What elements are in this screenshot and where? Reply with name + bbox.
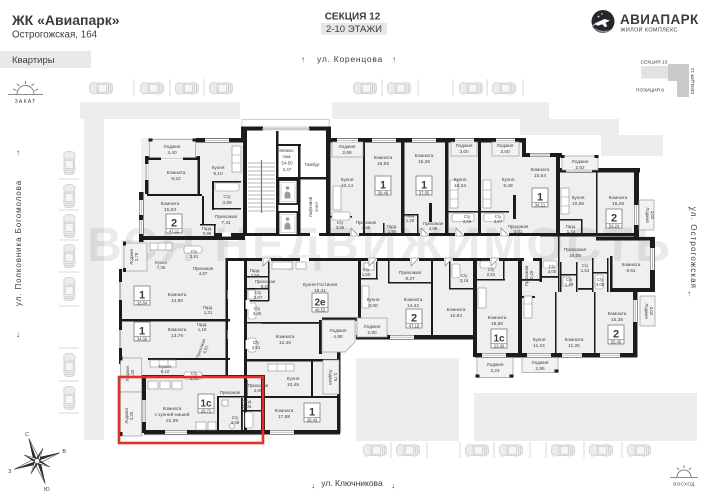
svg-text:Комната: Комната bbox=[415, 153, 434, 159]
svg-text:47,19: 47,19 bbox=[409, 324, 420, 329]
svg-text:ЗАКАТ: ЗАКАТ bbox=[15, 99, 37, 105]
svg-text:ул. Коренцова: ул. Коренцова bbox=[317, 54, 383, 64]
svg-text:ул. Острогожская: ул. Острогожская bbox=[689, 207, 698, 289]
svg-text:9,10: 9,10 bbox=[161, 369, 170, 374]
svg-text:14,90: 14,90 bbox=[171, 298, 183, 304]
svg-text:54,24: 54,24 bbox=[609, 224, 620, 229]
svg-text:55,45: 55,45 bbox=[611, 340, 622, 345]
svg-text:2,07: 2,07 bbox=[254, 295, 263, 300]
svg-text:1,19: 1,19 bbox=[198, 327, 207, 332]
svg-text:3,00: 3,00 bbox=[596, 282, 605, 287]
svg-text:11,24: 11,24 bbox=[533, 343, 545, 349]
svg-text:38,48: 38,48 bbox=[378, 191, 389, 196]
svg-text:Комната: Комната bbox=[163, 406, 182, 412]
svg-text:Комната: Комната bbox=[168, 327, 187, 333]
svg-text:2,68: 2,68 bbox=[342, 150, 352, 156]
svg-text:3,85: 3,85 bbox=[336, 225, 345, 230]
svg-text:1,31: 1,31 bbox=[204, 310, 213, 315]
svg-text:Квартиры: Квартиры bbox=[12, 55, 55, 66]
svg-text:23,09: 23,09 bbox=[494, 344, 505, 349]
svg-text:15,03: 15,03 bbox=[164, 207, 176, 213]
svg-text:Комната: Комната bbox=[275, 408, 294, 414]
svg-text:Кухня: Кухня bbox=[502, 177, 515, 183]
svg-text:ЖК «Авиапарк»: ЖК «Авиапарк» bbox=[11, 12, 120, 28]
svg-text:10,15: 10,15 bbox=[529, 270, 534, 282]
svg-text:0,96: 0,96 bbox=[203, 231, 212, 236]
svg-text:Кухня: Кухня bbox=[341, 177, 354, 183]
svg-text:2,86: 2,86 bbox=[535, 366, 545, 372]
svg-text:2,47: 2,47 bbox=[283, 167, 292, 172]
svg-text:17,88: 17,88 bbox=[278, 414, 290, 420]
svg-text:15,36: 15,36 bbox=[418, 159, 430, 165]
svg-text:10,84: 10,84 bbox=[450, 313, 462, 319]
svg-text:7,41: 7,41 bbox=[221, 220, 231, 226]
svg-text:1,49: 1,49 bbox=[565, 282, 574, 287]
svg-text:Лоджия: Лоджия bbox=[164, 144, 181, 150]
svg-text:Комната: Комната bbox=[167, 170, 186, 176]
svg-text:3,20: 3,20 bbox=[129, 411, 134, 420]
svg-text:Тамбур: Тамбур bbox=[305, 162, 320, 167]
svg-text:ул. Ключникова: ул. Ключникова bbox=[321, 478, 383, 488]
svg-text:Комната: Комната bbox=[447, 307, 466, 313]
svg-text:47,11: 47,11 bbox=[169, 229, 180, 234]
svg-text:3,02: 3,02 bbox=[649, 307, 654, 316]
svg-text:34,09: 34,09 bbox=[137, 337, 148, 342]
svg-text:Кухня: Кухня bbox=[367, 297, 380, 303]
svg-text:3,00: 3,00 bbox=[548, 269, 557, 274]
svg-text:54-50: 54-50 bbox=[281, 161, 293, 166]
svg-text:7,36: 7,36 bbox=[157, 265, 166, 270]
svg-text:12,46: 12,46 bbox=[279, 340, 291, 346]
svg-text:3,67: 3,67 bbox=[494, 219, 503, 224]
svg-text:4,01: 4,01 bbox=[514, 229, 523, 234]
svg-text:Комната: Комната bbox=[276, 334, 295, 340]
svg-text:Лоджия: Лоджия bbox=[572, 159, 589, 165]
svg-text:8,27: 8,27 bbox=[405, 276, 415, 282]
svg-text:4,80: 4,80 bbox=[254, 388, 263, 393]
svg-text:22,39: 22,39 bbox=[166, 418, 178, 424]
svg-text:3,02: 3,02 bbox=[650, 211, 655, 220]
svg-text:Комната: Комната bbox=[622, 262, 641, 268]
svg-text:Кухня: Кухня bbox=[572, 195, 585, 201]
svg-text:10,45: 10,45 bbox=[287, 382, 299, 388]
svg-text:ЖИЛОЙ КОМПЛЕКС: ЖИЛОЙ КОМПЛЕКС bbox=[621, 26, 678, 34]
svg-text:1,54: 1,54 bbox=[581, 268, 590, 273]
svg-text:34,21: 34,21 bbox=[535, 203, 546, 208]
svg-text:Лоджия: Лоджия bbox=[645, 207, 650, 223]
svg-text:СЕКЦИЯ 13: СЕКЦИЯ 13 bbox=[641, 60, 668, 66]
svg-text:10,14: 10,14 bbox=[341, 183, 353, 189]
svg-text:8,00: 8,00 bbox=[368, 303, 378, 309]
svg-text:33,84: 33,84 bbox=[137, 301, 148, 306]
svg-text:13,78: 13,78 bbox=[171, 333, 183, 339]
svg-text:↑: ↑ bbox=[687, 289, 691, 298]
svg-text:СЕКЦИЯ 12: СЕКЦИЯ 12 bbox=[690, 67, 696, 94]
svg-text:3,91: 3,91 bbox=[190, 254, 199, 259]
svg-text:Лоджия: Лоджия bbox=[364, 324, 381, 330]
svg-text:16,59: 16,59 bbox=[377, 161, 389, 167]
svg-text:с кухней-нишей: с кухней-нишей bbox=[155, 411, 190, 418]
svg-text:3,69: 3,69 bbox=[222, 200, 232, 206]
svg-text:Лоджия: Лоджия bbox=[339, 144, 356, 150]
svg-text:Комната: Комната bbox=[531, 167, 550, 173]
svg-text:Лоджия: Лоджия bbox=[497, 143, 514, 149]
svg-text:48,53: 48,53 bbox=[315, 308, 326, 313]
svg-text:↓: ↓ bbox=[311, 481, 315, 490]
svg-text:Комната: Комната bbox=[609, 195, 628, 201]
svg-text:Межил.: Межил. bbox=[279, 148, 294, 153]
svg-text:4,97: 4,97 bbox=[199, 271, 208, 276]
svg-text:15,54: 15,54 bbox=[534, 173, 546, 179]
svg-text:9,49: 9,49 bbox=[503, 183, 513, 189]
svg-text:Лоджия: Лоджия bbox=[644, 303, 649, 319]
svg-text:4,88: 4,88 bbox=[429, 226, 438, 231]
svg-text:10,05: 10,05 bbox=[569, 253, 581, 259]
svg-text:6,29: 6,29 bbox=[261, 284, 270, 289]
svg-text:4,45: 4,45 bbox=[253, 311, 262, 316]
svg-text:холл: холл bbox=[314, 202, 319, 212]
svg-text:Лоджия: Лоджия bbox=[330, 328, 347, 334]
svg-text:28,72: 28,72 bbox=[201, 409, 212, 414]
svg-text:Лоджия: Лоджия bbox=[328, 369, 333, 385]
svg-text:Острогожская, 164: Острогожская, 164 bbox=[12, 30, 98, 41]
svg-text:Прихожая: Прихожая bbox=[215, 214, 238, 220]
svg-text:Прихожая: Прихожая bbox=[220, 390, 241, 395]
svg-text:↓: ↓ bbox=[16, 330, 20, 339]
svg-text:4,98: 4,98 bbox=[333, 334, 343, 340]
svg-text:ВОСХОД: ВОСХОД bbox=[673, 482, 695, 487]
svg-text:2,78: 2,78 bbox=[333, 373, 338, 382]
svg-text:пом.: пом. bbox=[282, 154, 291, 159]
svg-text:18,66: 18,66 bbox=[491, 321, 503, 327]
svg-text:↑: ↑ bbox=[16, 148, 20, 157]
svg-text:Прихожая: Прихожая bbox=[564, 247, 587, 253]
svg-text:2-10 ЭТАЖИ: 2-10 ЭТАЖИ bbox=[326, 24, 382, 35]
svg-text:Комната: Комната bbox=[374, 155, 393, 161]
svg-text:Комната: Комната bbox=[168, 292, 187, 298]
svg-text:Комната: Комната bbox=[608, 311, 627, 317]
svg-text:Лоджия: Лоджия bbox=[456, 143, 473, 149]
svg-text:2,56: 2,56 bbox=[251, 273, 260, 278]
svg-text:Ю: Ю bbox=[44, 487, 50, 493]
svg-text:Кухня: Кухня bbox=[212, 165, 225, 171]
svg-text:3,00: 3,00 bbox=[459, 149, 469, 155]
svg-text:Лоджия: Лоджия bbox=[487, 362, 504, 368]
svg-text:37,05: 37,05 bbox=[419, 191, 430, 196]
svg-text:↓: ↓ bbox=[391, 481, 395, 490]
svg-text:38,43: 38,43 bbox=[307, 418, 318, 423]
svg-text:2,80: 2,80 bbox=[367, 330, 377, 336]
svg-text:С/у: С/у bbox=[223, 194, 231, 200]
svg-text:4,66: 4,66 bbox=[362, 225, 371, 230]
svg-text:2,78: 2,78 bbox=[134, 252, 139, 261]
svg-text:3,69: 3,69 bbox=[463, 219, 472, 224]
svg-text:Кухня: Кухня bbox=[287, 376, 300, 382]
svg-text:Комната: Комната bbox=[404, 297, 423, 303]
svg-text:1,50: 1,50 bbox=[362, 272, 371, 277]
svg-text:11,25: 11,25 bbox=[568, 343, 580, 349]
svg-text:1,05: 1,05 bbox=[243, 404, 252, 409]
svg-text:1,90: 1,90 bbox=[388, 229, 397, 234]
svg-text:Кухня-Гостиная: Кухня-Гостиная bbox=[303, 282, 338, 288]
svg-text:Кухня: Кухня bbox=[533, 337, 546, 343]
svg-text:10,55: 10,55 bbox=[572, 201, 584, 207]
svg-text:Комната: Комната bbox=[488, 315, 507, 321]
svg-text:10,34: 10,34 bbox=[454, 183, 466, 189]
svg-text:↑: ↑ bbox=[392, 55, 396, 64]
svg-text:С: С bbox=[25, 432, 29, 438]
svg-text:2,52: 2,52 bbox=[575, 165, 585, 171]
svg-text:3,24: 3,24 bbox=[490, 368, 500, 374]
svg-text:Лифтовой: Лифтовой bbox=[308, 196, 313, 217]
svg-text:Комната: Комната bbox=[565, 337, 584, 343]
svg-text:9,22: 9,22 bbox=[171, 176, 181, 182]
svg-text:В: В bbox=[62, 449, 66, 455]
svg-text:Кухня: Кухня bbox=[454, 177, 467, 183]
svg-text:3,16: 3,16 bbox=[460, 278, 469, 283]
svg-text:3,40: 3,40 bbox=[167, 150, 177, 156]
svg-text:3,91: 3,91 bbox=[252, 345, 261, 350]
svg-text:↑: ↑ bbox=[687, 204, 691, 213]
svg-text:ул. Полковника Богомолова: ул. Полковника Богомолова bbox=[14, 180, 23, 306]
svg-text:1,26: 1,26 bbox=[406, 218, 415, 223]
svg-text:ПОЗИЦИЯ 6: ПОЗИЦИЯ 6 bbox=[636, 88, 664, 94]
svg-text:15,38: 15,38 bbox=[611, 317, 623, 323]
svg-text:14,42: 14,42 bbox=[407, 303, 419, 309]
svg-text:↑: ↑ bbox=[301, 55, 305, 64]
svg-text:Лоджия: Лоджия bbox=[532, 360, 549, 366]
svg-text:15,28: 15,28 bbox=[612, 201, 624, 207]
svg-text:Комната: Комната bbox=[161, 201, 180, 207]
svg-text:9,10: 9,10 bbox=[213, 171, 223, 177]
svg-text:СЕКЦИЯ 12: СЕКЦИЯ 12 bbox=[325, 12, 381, 23]
svg-text:1,44: 1,44 bbox=[567, 229, 576, 234]
svg-text:9,61: 9,61 bbox=[626, 268, 636, 274]
svg-text:3,00: 3,00 bbox=[500, 149, 510, 155]
svg-text:АВИАПАРК: АВИАПАРК bbox=[620, 12, 699, 27]
svg-text:2,81: 2,81 bbox=[487, 272, 496, 277]
svg-text:3,68: 3,68 bbox=[231, 420, 240, 425]
svg-text:Прихожая: Прихожая bbox=[399, 270, 422, 276]
